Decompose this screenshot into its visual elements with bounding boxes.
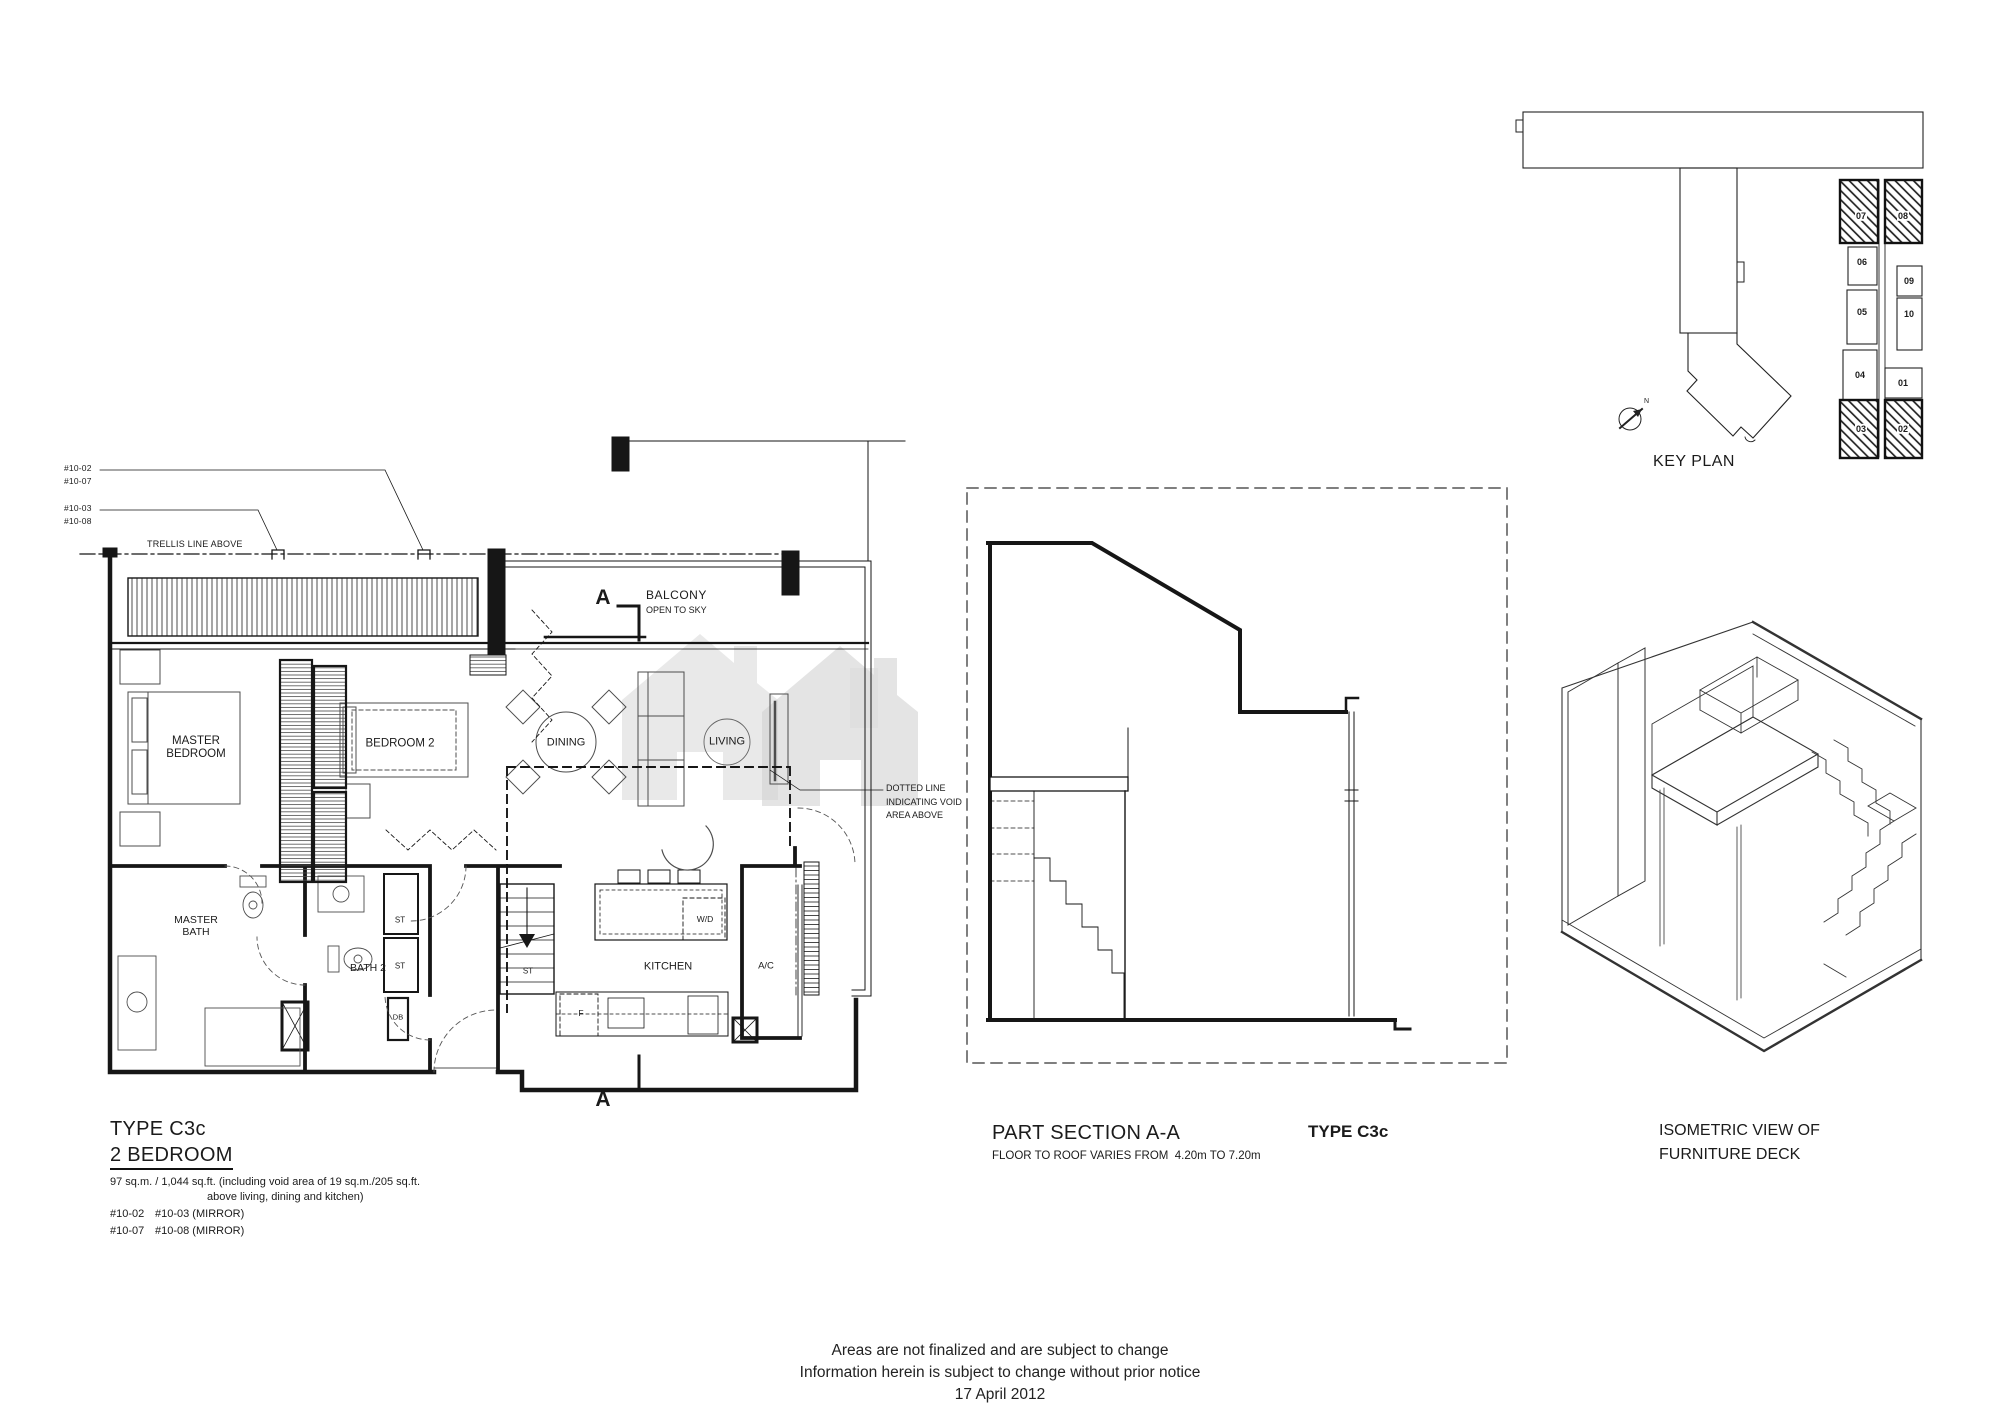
floor-plan-sheet: #10-02 #10-07 #10-03 #10-08 TRELLIS LINE… [0,0,2000,1414]
unit-list-row2-col2: #10-08 (MIRROR) [155,1225,244,1238]
key-plan-unit-09: 09 [1904,276,1914,286]
isometric-title-line2: FURNITURE DECK [1659,1146,1800,1164]
key-plan-unit-10: 10 [1904,309,1914,319]
label-balcony-open-to-sky: OPEN TO SKY [646,605,707,615]
isometric-drawing [1562,622,1921,1051]
key-plan-unit-02: 02 [1897,424,1909,434]
key-plan-drawing [1516,112,1923,458]
room-label-living: LIVING [695,736,759,749]
unit-ref-top-1a: #10-02 [64,464,92,474]
section-marker-a-bottom: A [595,1088,610,1112]
unit-list-row1-col1: #10-02 [110,1208,144,1221]
room-label-kitchen: KITCHEN [628,961,708,974]
room-label-master-bedroom: MASTER BEDROOM [158,735,234,761]
part-section-title: PART SECTION A-A [992,1122,1180,1145]
disclaimer-line1: Areas are not finalized and are subject … [832,1342,1169,1360]
room-label-dining: DINING [531,737,601,750]
unit-bedroom-title: 2 BEDROOM [110,1144,233,1170]
unit-list-row1-col2: #10-03 (MIRROR) [155,1208,244,1221]
unit-ref-top-1b: #10-07 [64,477,92,487]
room-label-bedroom2: BEDROOM 2 [345,737,455,750]
room-label-master-bath: MASTER BATH [167,914,225,938]
label-balcony: BALCONY [646,589,707,603]
label-washer-dryer: W/D [697,915,714,925]
unit-area-line2: above living, dining and kitchen) [207,1191,364,1204]
unit-ref-top-2a: #10-03 [64,504,92,514]
label-storage-1: ST [395,915,405,924]
key-plan-title: KEY PLAN [1653,453,1735,471]
label-storage-3: ST [523,966,533,975]
trellis-note: TRELLIS LINE ABOVE [147,539,243,549]
key-plan-unit-08: 08 [1897,211,1909,221]
unit-area-line1: 97 sq.m. / 1,044 sq.ft. (including void … [110,1176,420,1189]
label-ac-ledge: A/C [758,962,774,973]
isometric-title-line1: ISOMETRIC VIEW OF [1659,1122,1820,1140]
key-plan-unit-06: 06 [1857,257,1867,267]
key-plan-unit-03: 03 [1855,424,1867,434]
key-plan-unit-01: 01 [1898,378,1908,388]
room-label-bath2: BATH 2 [338,962,398,974]
void-area-note: DOTTED LINE INDICATING VOID AREA ABOVE [886,782,980,823]
key-plan-unit-04: 04 [1855,370,1865,380]
label-fridge: F [578,1009,583,1019]
label-db-box: DB [393,1014,403,1023]
part-section-type: TYPE C3c [1308,1122,1388,1142]
north-arrow-icon [1619,408,1642,430]
unit-ref-top-2b: #10-08 [64,517,92,527]
key-plan-unit-07: 07 [1855,211,1867,221]
north-label: N [1644,398,1649,406]
section-marker-a-top: A [595,586,610,610]
unit-list-row2-col1: #10-07 [110,1225,144,1238]
part-section-drawing [967,488,1507,1063]
key-plan-unit-05: 05 [1857,307,1867,317]
unit-type-title: TYPE C3c [110,1118,206,1141]
disclaimer-line2: Information herein is subject to change … [800,1364,1201,1382]
part-section-subtitle: FLOOR TO ROOF VARIES FROM 4.20m TO 7.20m [992,1150,1261,1163]
disclaimer-date: 17 April 2012 [955,1386,1046,1404]
label-storage-2: ST [395,961,405,970]
